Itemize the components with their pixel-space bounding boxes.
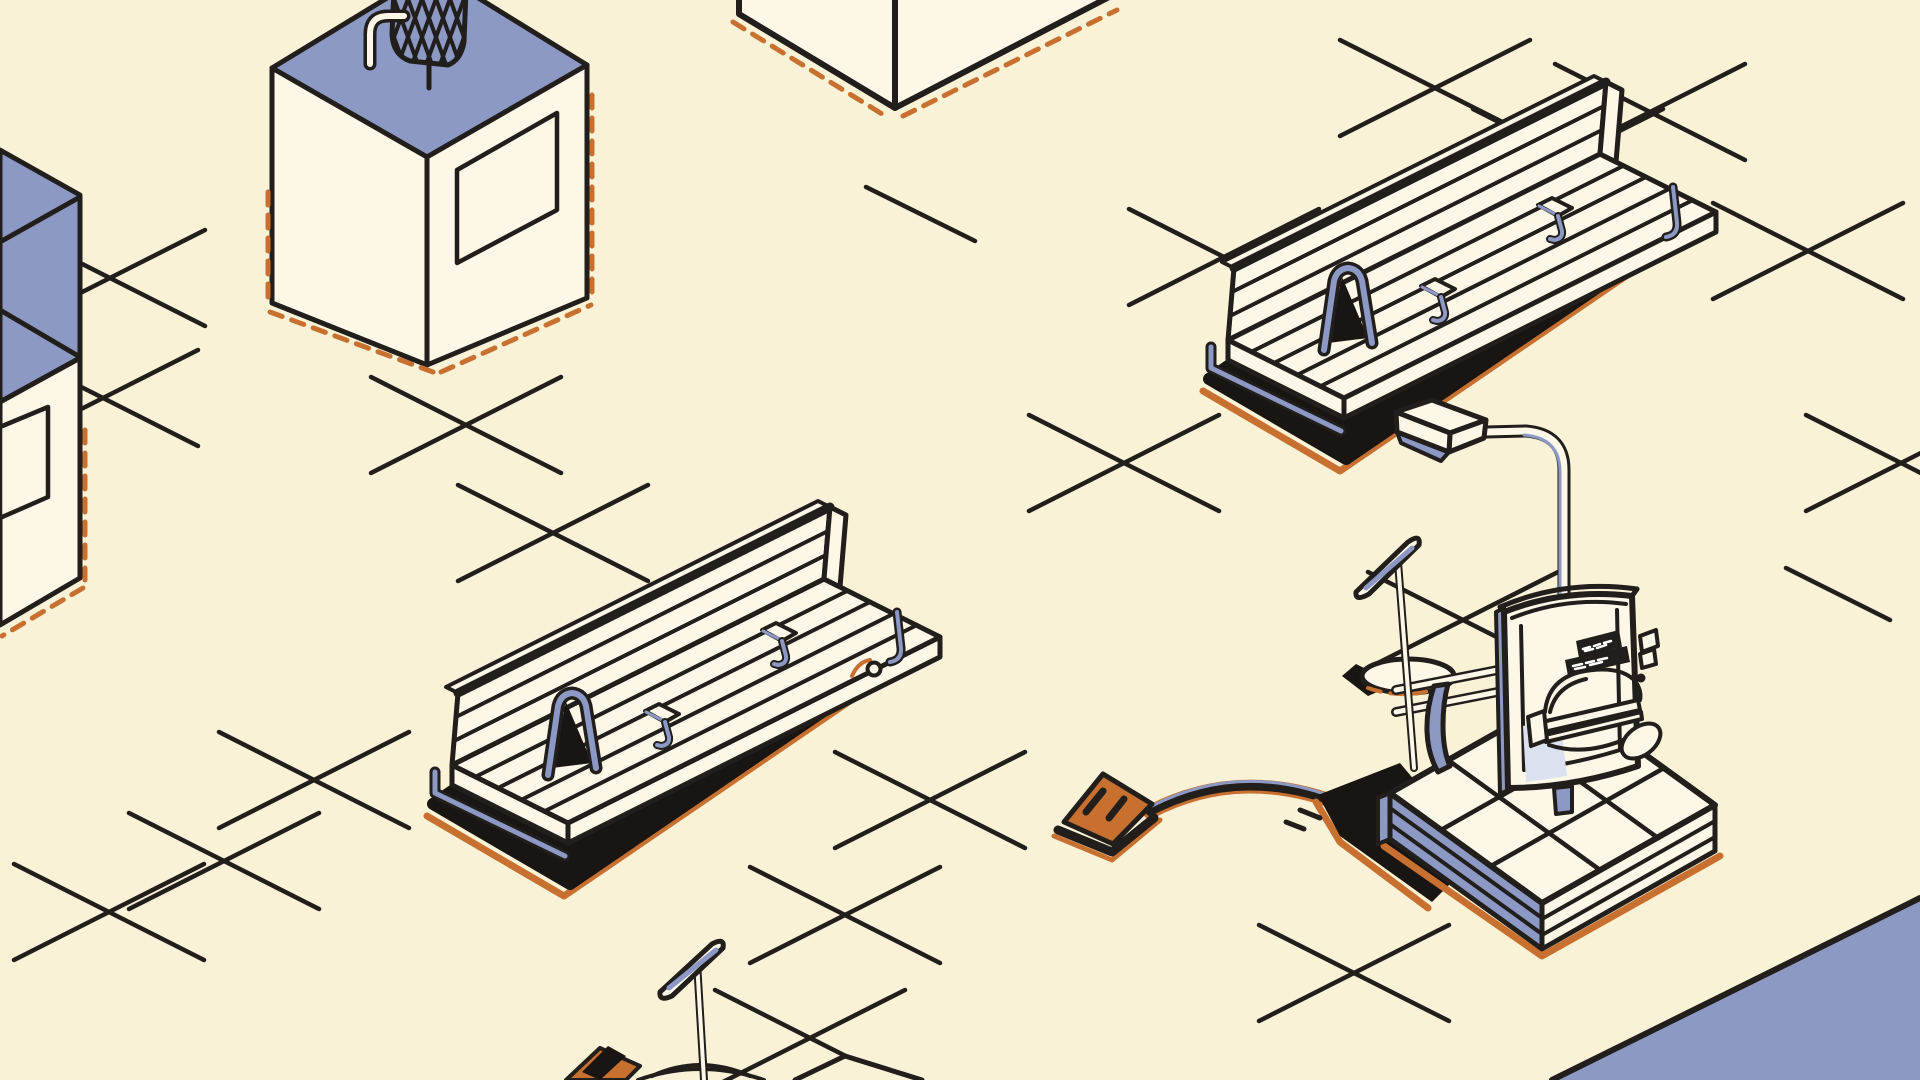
building-left-window: [0, 407, 48, 518]
scene-stage: [0, 0, 1920, 1080]
small-ball: [868, 663, 881, 676]
sign-peg: [1554, 786, 1572, 814]
building-basket[interactable]: [268, 0, 592, 372]
scene-canvas[interactable]: [0, 0, 1920, 1080]
building-left[interactable]: [0, 150, 85, 636]
